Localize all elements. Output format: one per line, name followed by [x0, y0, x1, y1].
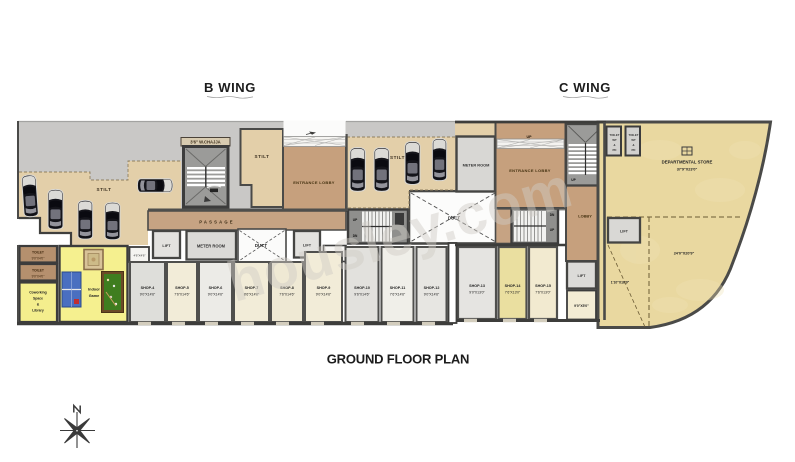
svg-text:7'6"X13'0": 7'6"X13'0"	[505, 291, 521, 295]
svg-text:UP: UP	[527, 135, 533, 139]
svg-text:TOILET: TOILET	[610, 133, 620, 137]
svg-text:Indoor: Indoor	[88, 288, 100, 292]
svg-text:WT: WT	[631, 138, 636, 142]
svg-text:TOILET: TOILET	[32, 269, 45, 273]
svg-text:TOILET: TOILET	[32, 251, 45, 255]
svg-text:PASSAGE: PASSAGE	[199, 220, 235, 225]
svg-text:37'9"X23'0": 37'9"X23'0"	[677, 168, 698, 172]
svg-text:9'0"X14'6": 9'0"X14'6"	[140, 293, 156, 297]
svg-text:SHOP-12: SHOP-12	[424, 286, 440, 290]
svg-text:9'0"X14'6": 9'0"X14'6"	[208, 293, 224, 297]
svg-text:7'6"X14'6": 7'6"X14'6"	[390, 293, 406, 297]
svg-text:ENTRANCE LOBBY: ENTRANCE LOBBY	[293, 180, 335, 185]
svg-text:LOBBY: LOBBY	[578, 214, 592, 219]
svg-text:STILT: STILT	[390, 155, 405, 160]
svg-text:9'0"X4'0": 9'0"X4'0"	[32, 275, 45, 279]
svg-text:METER ROOM: METER ROOM	[197, 244, 226, 249]
svg-text:SHOP-5: SHOP-5	[175, 286, 189, 290]
svg-text:9'0"X13'0": 9'0"X13'0"	[469, 291, 485, 295]
svg-text:SHOP-4: SHOP-4	[141, 286, 156, 290]
svg-text:METER ROOM: METER ROOM	[463, 163, 490, 168]
svg-text:LIFT: LIFT	[577, 274, 586, 278]
svg-text:WT: WT	[612, 138, 617, 142]
svg-text:SHOP-10: SHOP-10	[354, 286, 370, 290]
svg-text:LIFT: LIFT	[620, 230, 629, 234]
svg-text:9'0"X14'6": 9'0"X14'6"	[316, 293, 332, 297]
svg-text:TOILET: TOILET	[629, 133, 639, 137]
svg-text:7'6"X13'0": 7'6"X13'0"	[535, 291, 551, 295]
svg-text:PD: PD	[632, 148, 636, 152]
svg-text:SHOP-13: SHOP-13	[469, 284, 485, 288]
svg-text:Coworking: Coworking	[29, 291, 47, 295]
svg-text:DEPARTMENTAL STORE: DEPARTMENTAL STORE	[662, 160, 713, 165]
svg-text:PD: PD	[613, 148, 617, 152]
svg-text:9'6"X14'6": 9'6"X14'6"	[354, 293, 370, 297]
svg-text:SHOP-6: SHOP-6	[209, 286, 223, 290]
svg-text:SHOP-14: SHOP-14	[505, 284, 522, 288]
svg-text:7'6"X14'6": 7'6"X14'6"	[174, 293, 190, 297]
svg-text:STILT: STILT	[97, 187, 112, 192]
svg-text:24'0"X20'9": 24'0"X20'9"	[674, 252, 695, 256]
svg-text:STILT: STILT	[255, 154, 270, 159]
svg-text:&: &	[632, 143, 634, 147]
svg-text:C WING: C WING	[559, 80, 611, 95]
svg-text:Library: Library	[32, 309, 44, 313]
svg-text:B WING: B WING	[204, 80, 256, 95]
svg-text:3'6" W.CHAJJA: 3'6" W.CHAJJA	[190, 140, 220, 145]
svg-text:Space: Space	[33, 297, 43, 301]
svg-text:9'0"X14'6": 9'0"X14'6"	[424, 293, 440, 297]
svg-text:&: &	[613, 143, 615, 147]
svg-text:1'10"X16'9": 1'10"X16'9"	[611, 281, 630, 285]
svg-text:Game: Game	[89, 294, 100, 298]
svg-text:SHOP-15: SHOP-15	[535, 284, 551, 288]
svg-text:9'0"X4'0": 9'0"X4'0"	[32, 257, 45, 261]
svg-text:9'0"X5'0": 9'0"X5'0"	[574, 304, 589, 308]
svg-text:LIFT: LIFT	[162, 243, 171, 248]
svg-text:SHOP-11: SHOP-11	[390, 286, 406, 290]
svg-text:GROUND FLOOR PLAN: GROUND FLOOR PLAN	[327, 352, 469, 367]
svg-text:4'6"X4'6": 4'6"X4'6"	[134, 254, 146, 258]
